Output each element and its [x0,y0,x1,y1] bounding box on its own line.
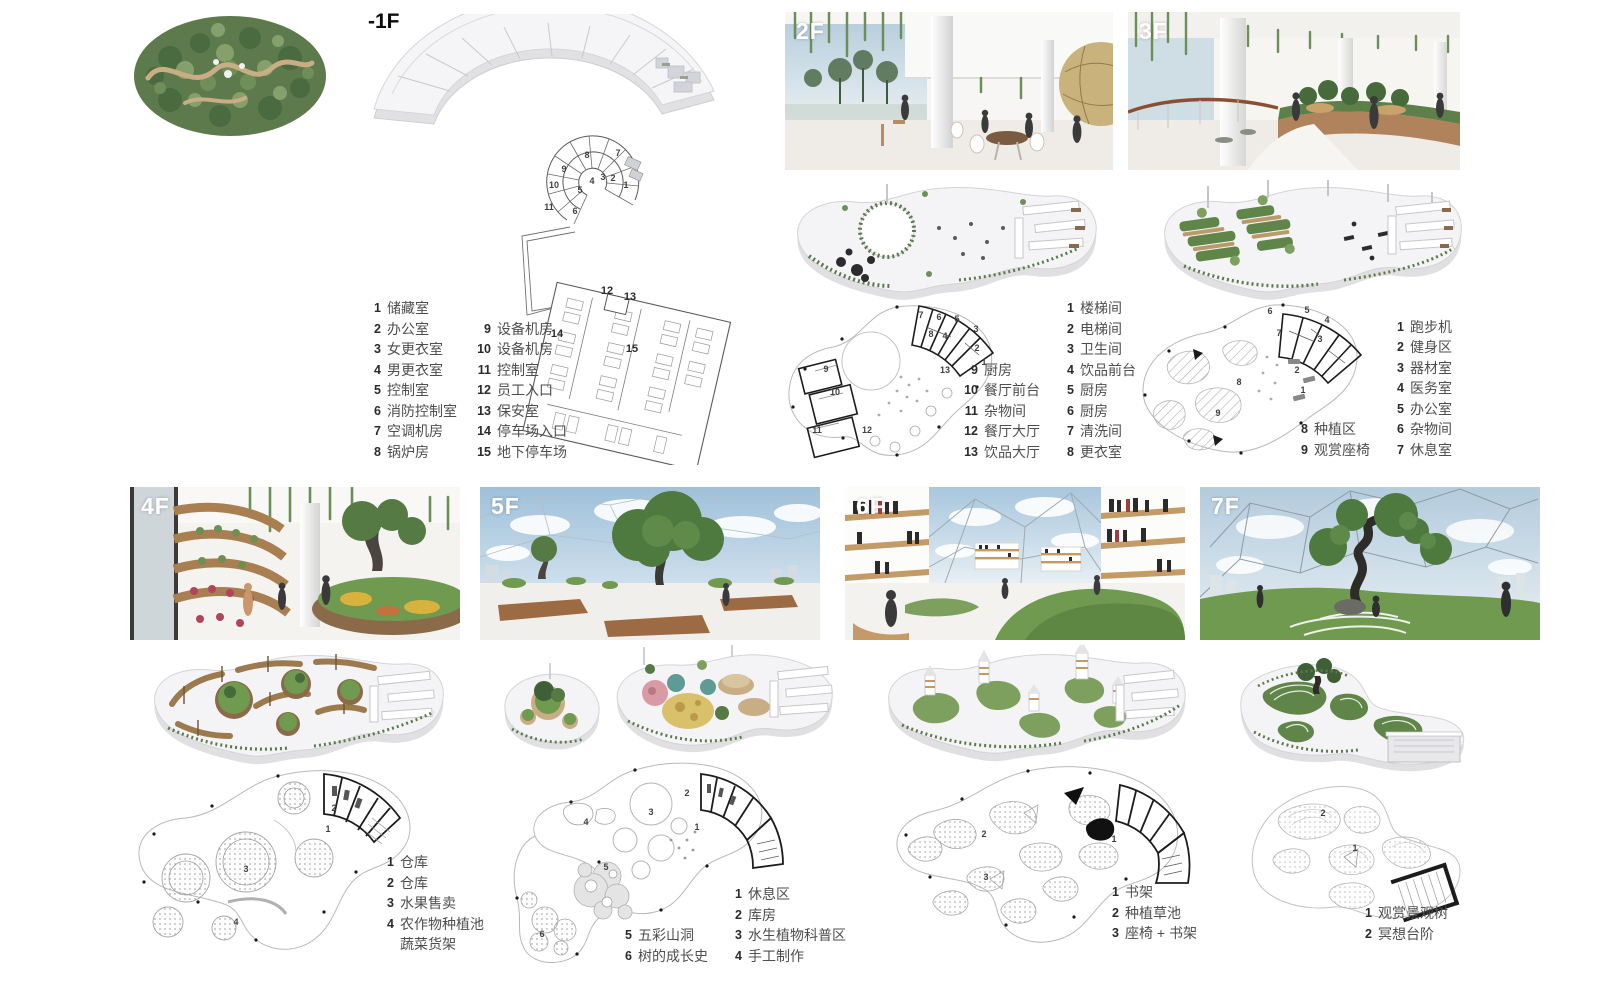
legend-item: 2库房 [726,905,846,926]
legend-col: 5五彩山洞6树的成长史 [616,925,708,966]
legend-item: 8锅炉房 [365,442,457,463]
plan-room-number: 5 [603,862,608,872]
plan-room-number: 12 [862,425,872,435]
plan-room-number: 7 [918,310,923,320]
plan-room-number: 2 [331,803,336,813]
legend-item: 1休息区 [726,884,846,905]
legend-item: 4饮品前台 [1058,360,1136,381]
plan-room-number: 11 [812,425,822,435]
plan-room-number: 12 [601,285,613,297]
legend-item: 1观赏景观树 [1356,903,1448,924]
plan-room-number: 7 [615,148,620,158]
plan-room-number: 9 [561,164,566,174]
axon-4f [138,648,448,766]
legend-item: 4男更衣室 [365,360,457,381]
plan-room-number: 6 [539,929,544,939]
legend-item: 5五彩山洞 [616,925,708,946]
legend-item: 4农作物种植池 蔬菜货架 [378,914,484,955]
legend-col: 9厨房10餐厅前台11杂物间12餐厅大厅13饮品大厅 [962,360,1040,463]
plan-room-number: 9 [1215,408,1220,418]
plan-room-number: 6 [936,312,941,322]
axon-7f [1218,652,1473,772]
render-photo-2f: 2F [785,12,1113,170]
plan-room-number: 2 [981,829,986,839]
render-photo-4f: 4F [130,487,460,640]
presentation-board: -1F [0,0,1600,1000]
plan-room-number: 1 [1111,834,1116,844]
floor-label-6f: 6F [856,493,885,520]
legend-6f: 1书架2种植草池3座椅 + 书架 [1103,882,1197,944]
axon-2f [779,178,1109,302]
plan-room-number: 8 [584,150,589,160]
plan-room-number: 4 [942,331,947,341]
legend-item: 2仓库 [378,873,484,894]
floor-label-3f: 3F [1139,18,1168,45]
plan-room-number: 6 [1267,306,1272,316]
legend-col: 1书架2种植草池3座椅 + 书架 [1103,882,1197,944]
legend-item: 9厨房 [962,360,1040,381]
legend-col: 1观赏景观树2冥想台阶 [1356,903,1448,944]
plan-room-number: 5 [954,314,959,324]
legend-item: 13饮品大厅 [962,442,1040,463]
legend-col: 1储藏室2办公室3女更衣室4男更衣室5控制室6消防控制室7空调机房8锅炉房 [365,298,457,462]
plan-room-number: 4 [583,817,588,827]
axon-b1 [362,14,720,144]
legend-item: 6厨房 [1058,401,1136,422]
legend-item: 1书架 [1103,882,1197,903]
plan-4f: 2134 [128,762,418,957]
render-photo-5f: 5F [480,487,820,640]
legend-item: 3器材室 [1388,358,1452,379]
plan-room-number: 2 [1320,808,1325,818]
axon-6f [872,645,1192,765]
floor-label-7f: 7F [1211,493,1240,520]
legend-item: 4医务室 [1388,378,1452,399]
legend-col: 9设备机房10设备机房11控制室12员工入口13保安室14停车场入口15地下停车… [475,319,567,463]
legend-item: 11控制室 [475,360,567,381]
plan-room-number: 10 [549,180,559,190]
legend-item: 14停车场入口 [475,421,567,442]
plan-room-number: 1 [623,180,628,190]
legend-item: 7空调机房 [365,421,457,442]
legend-item: 9观赏座椅 [1292,440,1370,461]
legend-item: 12餐厅大厅 [962,421,1040,442]
legend-item: 3卫生间 [1058,339,1136,360]
legend-item: 6杂物间 [1388,419,1452,440]
legend-item: 1储藏室 [365,298,457,319]
legend-item: 1楼梯间 [1058,298,1136,319]
render-photo-7f: 7F [1200,487,1540,640]
legend-5f: 5五彩山洞6树的成长史 1休息区2库房3水生植物科普区4手工制作 [616,878,846,966]
legend-item: 7清洗间 [1058,421,1136,442]
legend-col: 1休息区2库房3水生植物科普区4手工制作 [726,884,846,966]
legend-item: 3女更衣室 [365,339,457,360]
plan-room-number: 3 [648,807,653,817]
legend-item: 13保安室 [475,401,567,422]
plan-room-number: 1 [694,822,699,832]
plan-room-number: 11 [544,202,554,212]
legend-col: 1跑步机2健身区3器材室4医务室5办公室6杂物间7休息室 [1388,317,1452,461]
plan-room-number: 13 [940,365,950,375]
legend-item: 1仓库 [378,852,484,873]
legend-2f: 9厨房10餐厅前台11杂物间12餐厅大厅13饮品大厅 1楼梯间2电梯间3卫生间4… [962,297,1136,462]
plan-room-number: 3 [243,864,248,874]
legend-item: 9设备机房 [475,319,567,340]
legend-item: 7休息室 [1388,440,1452,461]
legend-item: 2健身区 [1388,337,1452,358]
legend-item: 1跑步机 [1388,317,1452,338]
legend-item: 5厨房 [1058,380,1136,401]
plan-room-number: 3 [600,172,605,182]
legend-item: 5办公室 [1388,399,1452,420]
legend-col: 1楼梯间2电梯间3卫生间4饮品前台5厨房6厨房7清洗间8更衣室 [1058,298,1136,462]
axon-5f [492,645,842,767]
legend-3f: 8种植区9观赏座椅 1跑步机2健身区3器材室4医务室5办公室6杂物间7休息室 [1292,318,1452,460]
legend-item: 6消防控制室 [365,401,457,422]
legend-item: 6树的成长史 [616,946,708,967]
legend-item: 2电梯间 [1058,319,1136,340]
legend-col: 8种植区9观赏座椅 [1292,419,1370,460]
plan-room-number: 4 [589,176,594,186]
plan-room-number: 1 [325,824,330,834]
render-photo-3f: 3F [1128,12,1460,170]
plan-room-number: 7 [1276,328,1281,338]
legend-item: 10餐厅前台 [962,380,1040,401]
floor-label-2f: 2F [796,18,825,45]
legend-7f: 1观赏景观树2冥想台阶 [1356,903,1448,944]
plan-room-number: 13 [624,291,636,303]
legend-item: 2办公室 [365,319,457,340]
plan-room-number: 4 [233,917,238,927]
legend-item: 8种植区 [1292,419,1370,440]
legend-item: 15地下停车场 [475,442,567,463]
plan-room-number: 9 [823,364,828,374]
legend-item: 12员工入口 [475,380,567,401]
legend-item: 11杂物间 [962,401,1040,422]
legend-item: 3水果售卖 [378,893,484,914]
plan-room-number: 6 [572,206,577,216]
axon-3f [1148,180,1468,302]
plan-room-number: 8 [928,329,933,339]
plan-room-number: 15 [626,343,638,355]
legend-item: 2冥想台阶 [1356,924,1448,945]
floor-label-5f: 5F [491,493,520,520]
plan-room-number: 2 [610,173,615,183]
plan-room-number: 10 [830,387,840,397]
plan-room-number: 2 [684,788,689,798]
legend-item: 4手工制作 [726,946,846,967]
legend-item: 8更衣室 [1058,442,1136,463]
legend-4f: 1仓库2仓库3水果售卖4农作物种植池 蔬菜货架 [378,852,484,955]
plan-room-number: 3 [983,872,988,882]
aerial-render [130,8,330,143]
legend-item: 2种植草池 [1103,903,1197,924]
legend-col: 1仓库2仓库3水果售卖4农作物种植池 蔬菜货架 [378,852,484,955]
render-photo-6f: 6F [845,487,1185,640]
legend-item: 10设备机房 [475,339,567,360]
legend-item: 3水生植物科普区 [726,925,846,946]
plan-room-number: 8 [1236,377,1241,387]
plan-room-number: 1 [1352,843,1357,853]
legend-item: 5控制室 [365,380,457,401]
plan-room-number: 5 [577,185,582,195]
floor-label-4f: 4F [141,493,170,520]
legend-item: 3座椅 + 书架 [1103,923,1197,944]
legend-b1: 1储藏室2办公室3女更衣室4男更衣室5控制室6消防控制室7空调机房8锅炉房 9设… [365,296,567,462]
plan-room-number: 5 [1304,305,1309,315]
